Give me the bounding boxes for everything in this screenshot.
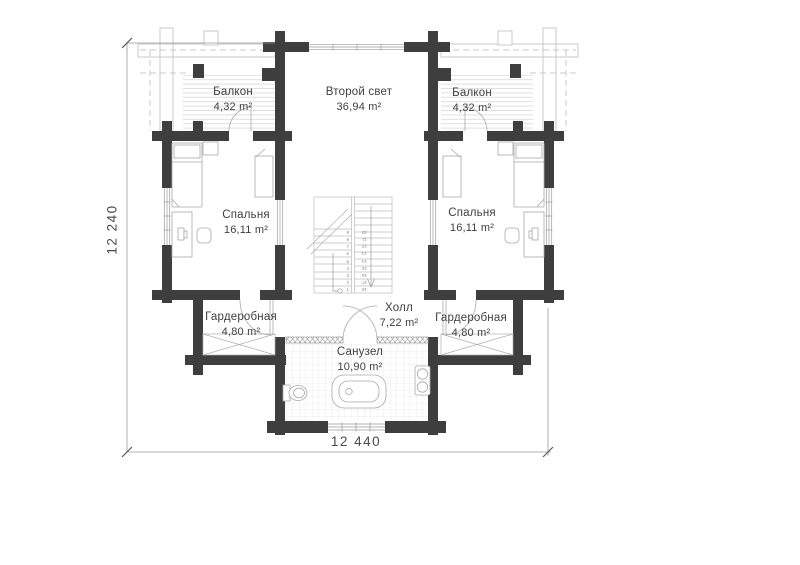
stair-step: 1 [339,286,349,293]
chair [505,228,519,243]
stair-step: 6 [339,250,349,257]
window-top [309,42,404,52]
room-name: Гардеробная [205,311,277,323]
stair-step: 15 [357,265,367,272]
room-name: Холл [385,302,413,314]
desk [524,212,544,257]
furniture-bedroom-right [443,142,544,257]
room-label-bedroom-left: Спальня 16,11 m² [222,208,270,238]
monitor [532,228,538,240]
stair-step: 14 [357,258,367,265]
furniture-bedroom-left [172,142,273,257]
room-area: 16,11 m² [222,223,270,238]
toilet [283,385,307,401]
window-right-exterior [544,188,554,245]
stair-step: 18 [357,286,367,293]
stair-step: 4 [339,265,349,272]
monitor [178,228,184,240]
stair-step: 7 [339,243,349,250]
room-label-balcony-left: Балкон 4,32 m² [213,85,253,115]
room-label-second-light: Второй свет 36,94 m² [326,85,392,115]
room-name: Спальня [222,209,270,221]
room-name: Санузел [337,346,383,358]
room-area: 4,32 m² [213,100,253,115]
wardrobe-cabinet [443,149,461,197]
bed [172,143,202,207]
floor-plan: Балкон 4,32 m² Второй свет 36,94 m² Балк… [0,0,800,565]
stair-step-numbers-right: 10 11 12 13 14 15 16 17 18 [357,229,367,293]
stair-step: 9 [339,229,349,236]
room-area: 4,80 m² [435,326,507,341]
room-area: 16,11 m² [448,221,496,236]
wardrobe-cabinet [255,149,273,197]
stair-step-numbers-left: 9 8 7 6 5 4 3 2 1 [339,229,349,293]
room-name: Балкон [452,87,492,99]
chair [197,228,211,243]
floor-plan-drawing [0,0,800,565]
door-bathroom-double [343,306,377,340]
bathtub [332,375,386,408]
stair-step: 13 [357,250,367,257]
room-label-hall: Холл 7,22 m² [380,301,419,331]
room-area: 36,94 m² [326,100,392,115]
room-label-wardrobe-left: Гардеробная 4,80 m² [205,310,277,340]
room-label-bedroom-right: Спальня 16,11 m² [448,206,496,236]
window-left-exterior [162,188,172,245]
window-inner-right [430,200,435,245]
room-name: Гардеробная [435,312,507,324]
window-bathroom [328,421,385,433]
nightstand [203,142,218,155]
bathroom-partition [286,337,428,343]
dimension-width-label: 12 440 [331,434,381,449]
room-label-balcony-right: Балкон 4,32 m² [452,86,492,116]
staircase [307,197,392,293]
stair-step: 3 [339,272,349,279]
window-inner-left [277,200,282,245]
room-label-bathroom: Санузел 10,90 m² [337,345,383,375]
desk [172,212,192,257]
room-label-wardrobe-right: Гардеробная 4,80 m² [435,311,507,341]
room-area: 4,32 m² [452,101,492,116]
room-area: 7,22 m² [380,316,419,331]
stair-step: 5 [339,258,349,265]
stair-step: 8 [339,236,349,243]
nightstand [498,142,513,155]
dimension-height-label: 12 240 [105,190,120,270]
stair-step: 2 [339,279,349,286]
room-name: Второй свет [326,86,392,98]
room-area: 4,80 m² [205,325,277,340]
room-name: Балкон [213,86,253,98]
bed [514,143,544,207]
sink [415,366,430,395]
room-name: Спальня [448,207,496,219]
room-area: 10,90 m² [337,360,383,375]
